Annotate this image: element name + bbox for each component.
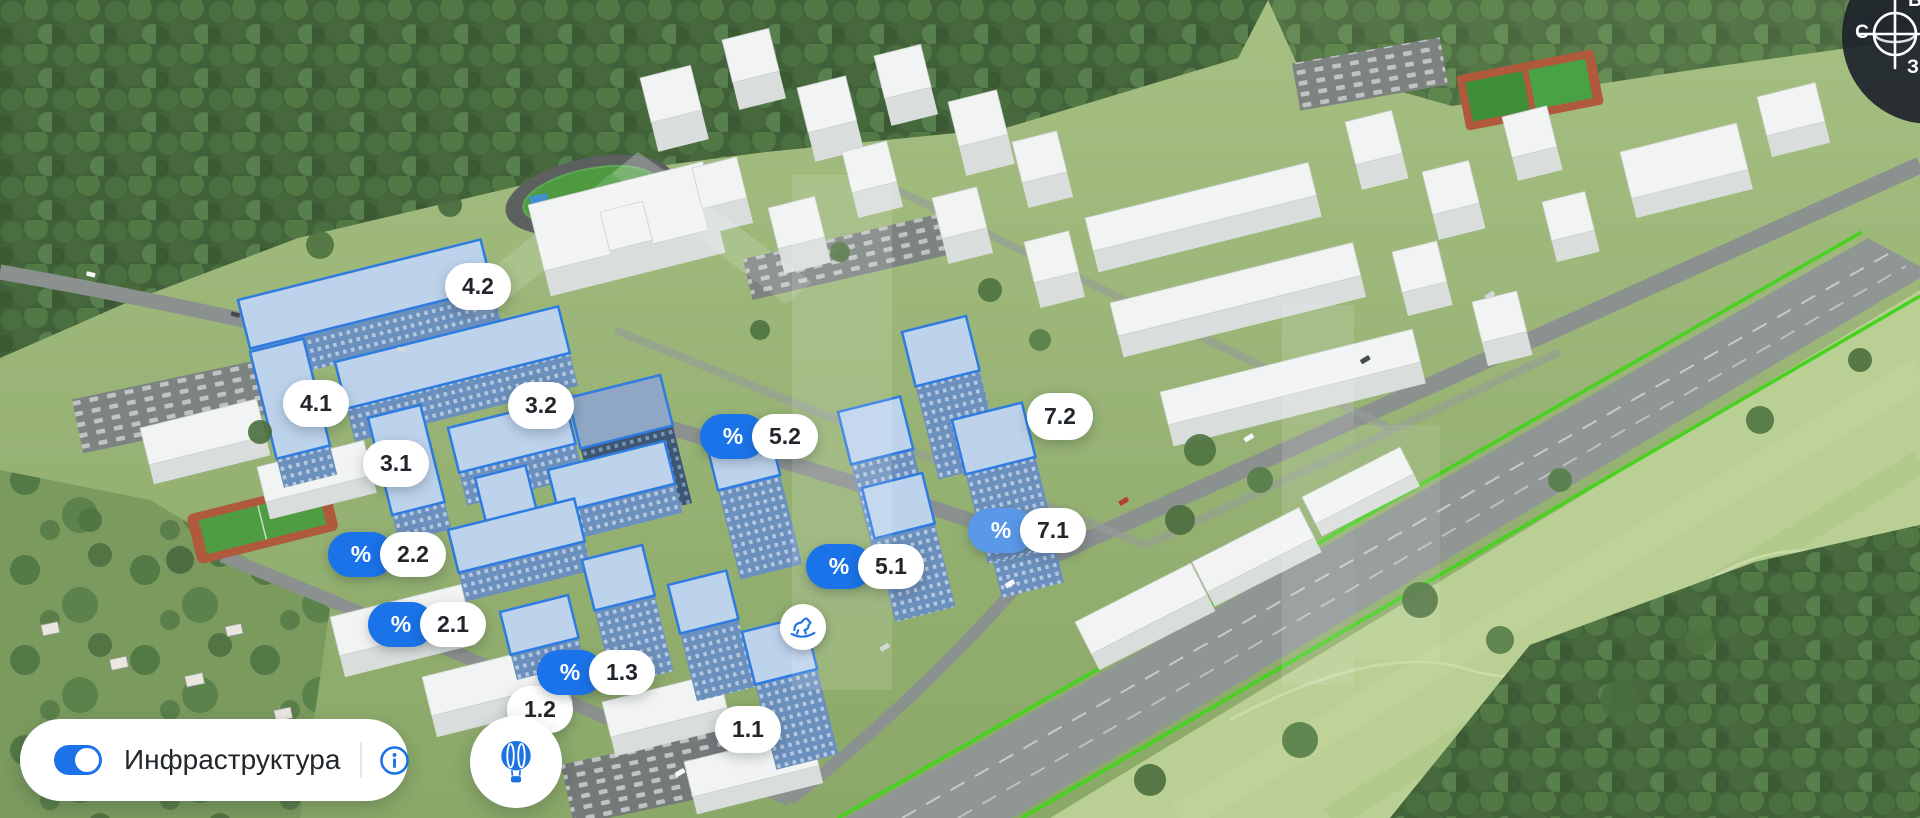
marker-label: 3.2 bbox=[525, 392, 557, 419]
rocking-horse-icon bbox=[789, 615, 817, 639]
balloon-view-button[interactable] bbox=[470, 716, 562, 808]
info-button[interactable] bbox=[379, 744, 410, 776]
marker-building-1-1[interactable]: 1.1 bbox=[715, 706, 781, 753]
marker-building-4-1[interactable]: 4.1 bbox=[283, 380, 349, 427]
infrastructure-label: Инфраструктура bbox=[124, 744, 340, 776]
masterplan-view: .wb .r{fill:#f2f4f3;stroke:#c9cfcc;strok… bbox=[0, 0, 1920, 818]
marker-building-4-2[interactable]: 4.2 bbox=[445, 263, 511, 310]
marker-label: 4.2 bbox=[462, 273, 494, 300]
marker-label: 5.1 bbox=[858, 544, 924, 589]
marker-label: 1.3 bbox=[589, 650, 655, 695]
marker-building-5-1[interactable]: % 5.1 bbox=[806, 544, 924, 589]
marker-label: 7.1 bbox=[1020, 508, 1086, 553]
marker-building-1-3[interactable]: % 1.3 bbox=[537, 650, 655, 695]
marker-building-7-2[interactable]: 7.2 bbox=[1027, 393, 1093, 440]
hot-air-balloon-icon bbox=[499, 740, 533, 784]
marker-building-3-2[interactable]: 3.2 bbox=[508, 382, 574, 429]
marker-label: 2.1 bbox=[420, 602, 486, 647]
marker-label: 2.2 bbox=[380, 532, 446, 577]
infrastructure-control: Инфраструктура bbox=[20, 719, 408, 801]
divider bbox=[360, 742, 362, 778]
playground-marker[interactable] bbox=[780, 604, 826, 650]
marker-building-2-1[interactable]: % 2.1 bbox=[368, 602, 486, 647]
infrastructure-toggle[interactable] bbox=[54, 745, 102, 775]
marker-label: 3.1 bbox=[380, 450, 412, 477]
marker-building-7-1[interactable]: % 7.1 bbox=[968, 508, 1086, 553]
info-icon bbox=[379, 745, 410, 776]
marker-label: 1.1 bbox=[732, 716, 764, 743]
marker-label: 7.2 bbox=[1044, 403, 1076, 430]
compass-globe-icon bbox=[1851, 0, 1920, 88]
marker-building-5-2[interactable]: % 5.2 bbox=[700, 414, 818, 459]
marker-building-2-2[interactable]: % 2.2 bbox=[328, 532, 446, 577]
marker-label: 5.2 bbox=[752, 414, 818, 459]
marker-label: 4.1 bbox=[300, 390, 332, 417]
marker-building-3-1[interactable]: 3.1 bbox=[363, 440, 429, 487]
